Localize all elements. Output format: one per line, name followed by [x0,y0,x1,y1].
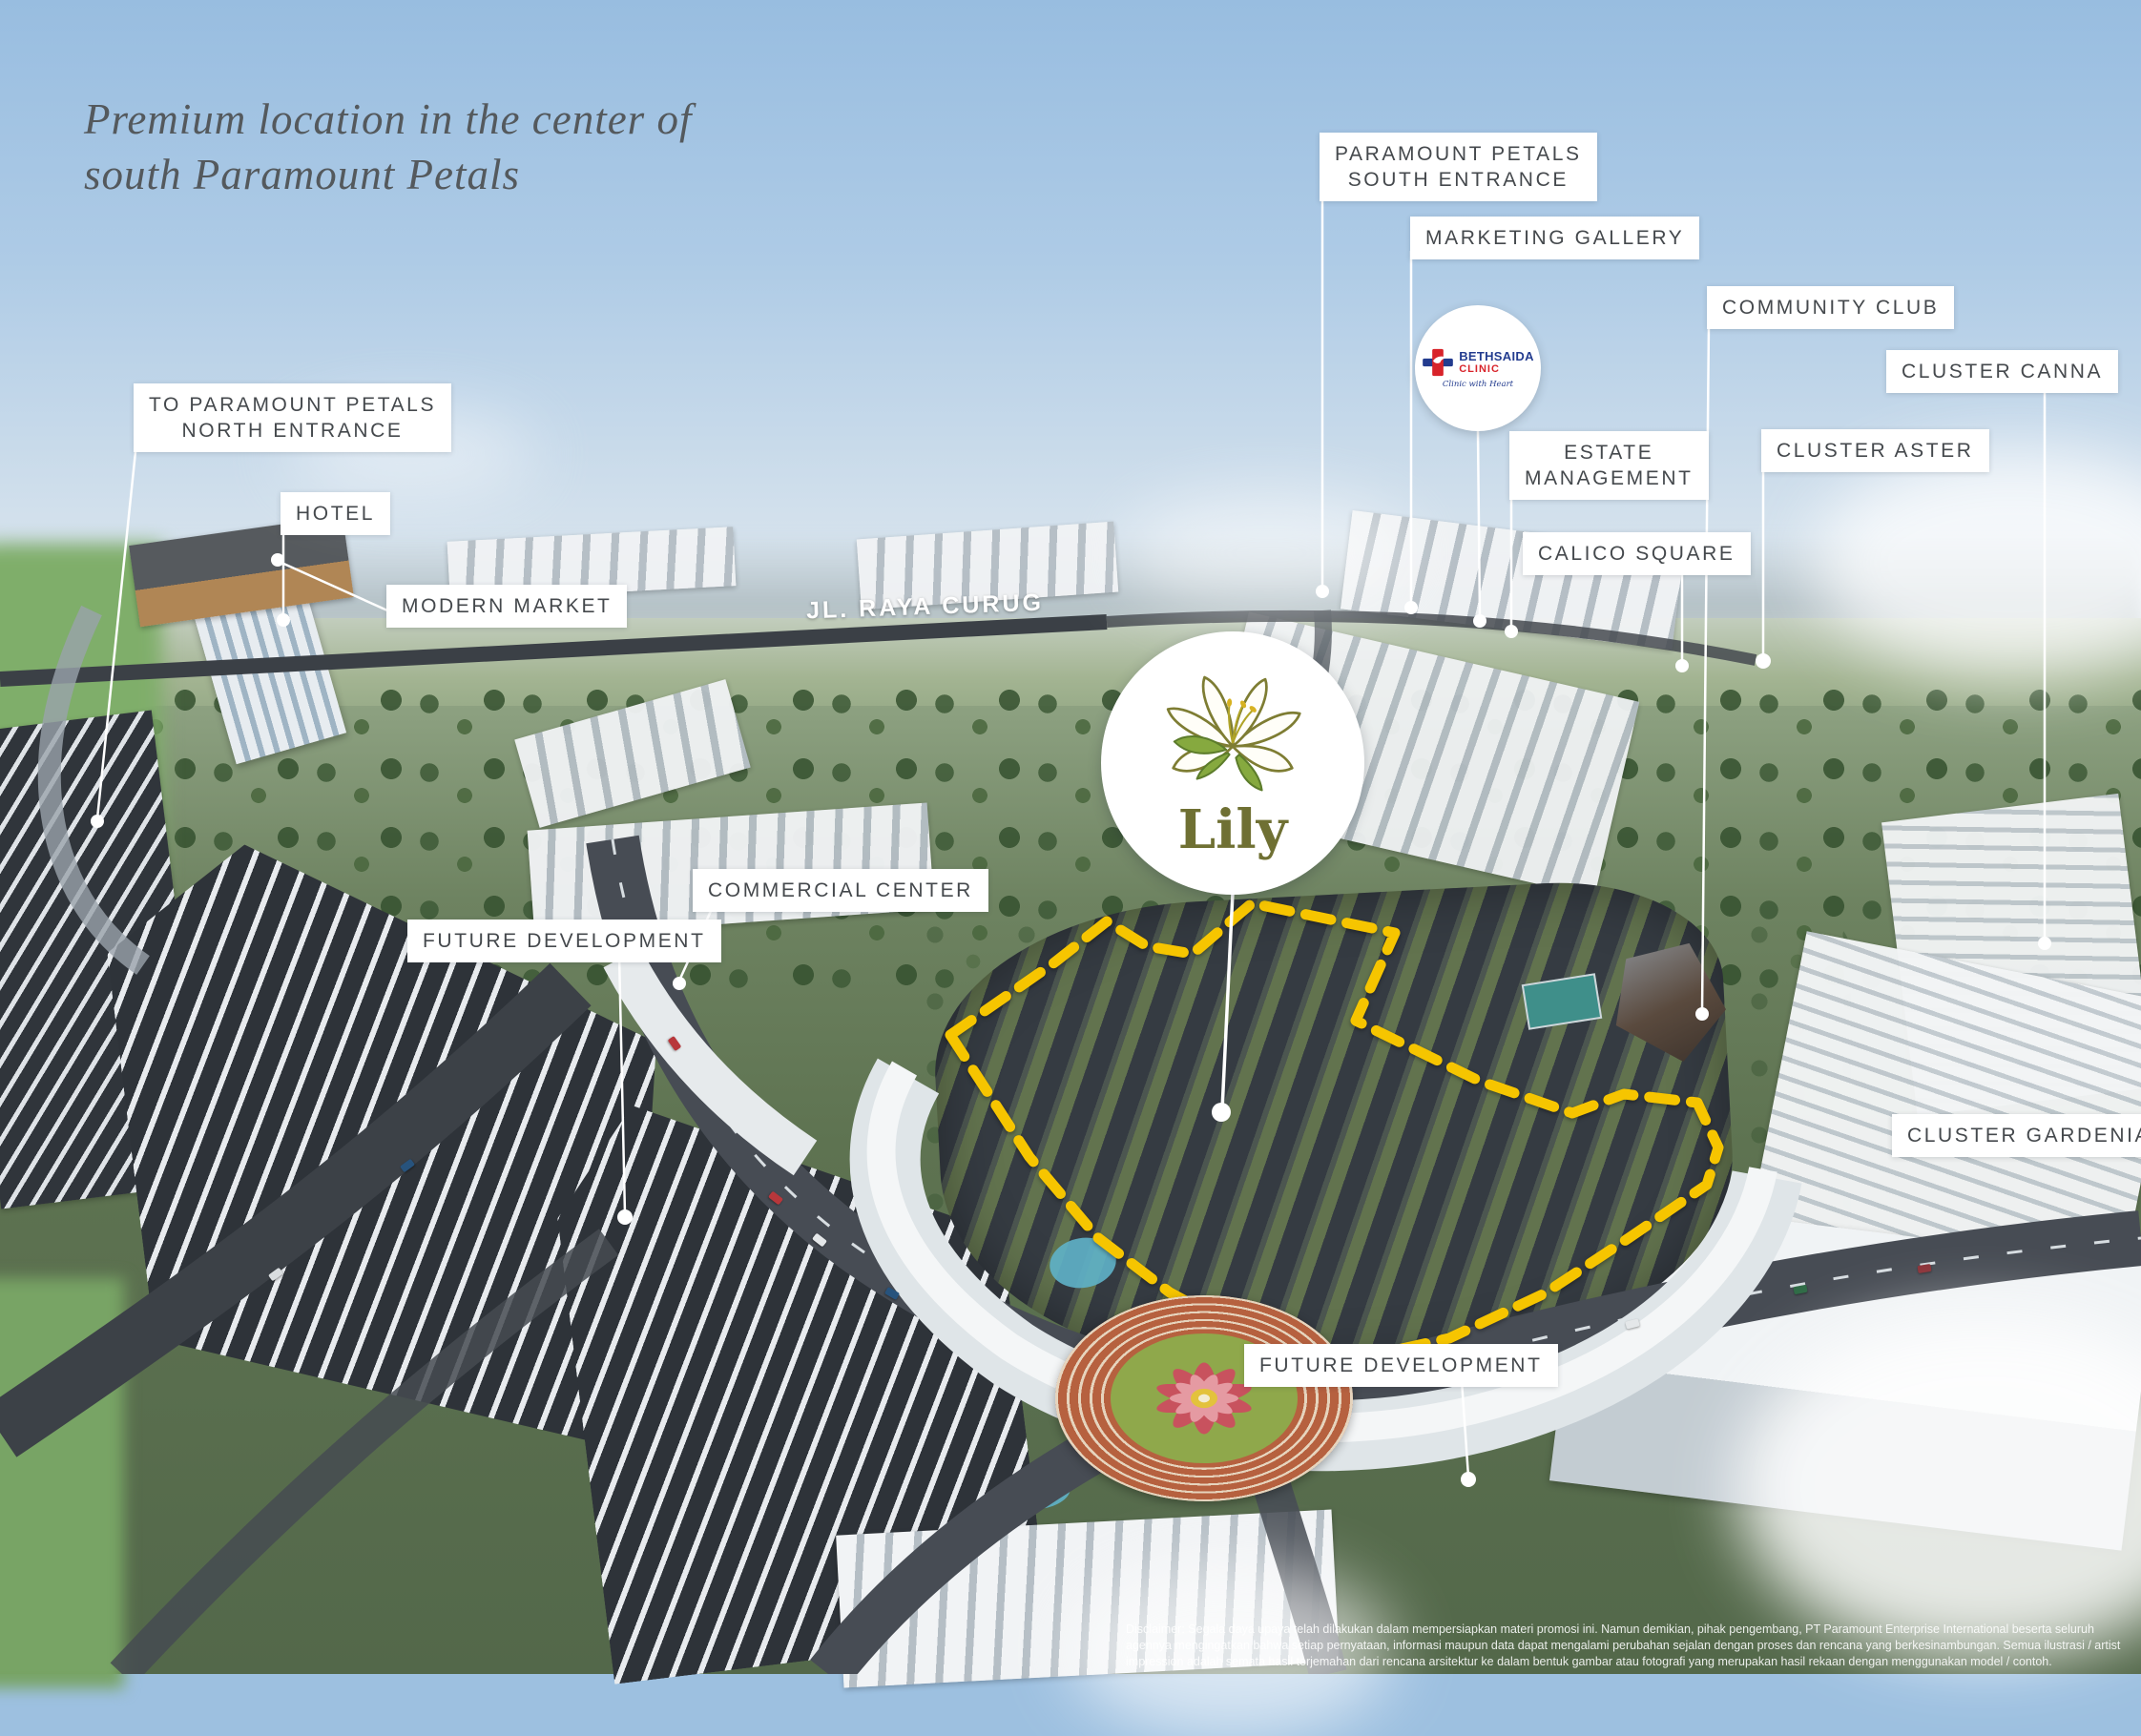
bethsaida-name: BETHSAIDA [1459,350,1534,363]
label-text: FUTURE DEVELOPMENT [423,928,706,954]
fog-cloud [1126,496,1412,610]
label-text: MANAGEMENT [1525,465,1694,491]
label-future-development-west: FUTURE DEVELOPMENT [407,920,721,962]
bethsaida-tagline: Clinic with Heart [1443,380,1513,389]
highway-road [0,622,1107,679]
medical-cross-dove-icon [1422,348,1454,377]
label-cluster-gardenia: CLUSTER GARDENIA [1892,1114,2141,1157]
label-text: CLUSTER GARDENIA [1907,1123,2141,1148]
bethsaida-clinic-badge: BETHSAIDA CLINIC Clinic with Heart [1415,305,1541,431]
label-text: MODERN MARKET [402,593,612,619]
label-commercial-center: COMMERCIAL CENTER [693,869,988,912]
label-text: HOTEL [296,501,375,527]
label-text: ESTATE [1525,440,1694,465]
label-text: FUTURE DEVELOPMENT [1259,1353,1543,1378]
label-modern-market: MODERN MARKET [386,585,627,628]
label-calico-square: CALICO SQUARE [1523,532,1751,575]
label-text: SOUTH ENTRANCE [1335,167,1582,193]
label-text: CLUSTER ASTER [1777,438,1974,464]
lily-wordmark: Lily [1101,798,1364,861]
label-text: COMMUNITY CLUB [1722,295,1939,320]
bethsaida-type: CLINIC [1459,363,1534,375]
label-south-entrance: PARAMOUNT PETALS SOUTH ENTRANCE [1320,133,1597,201]
label-future-development-south: FUTURE DEVELOPMENT [1244,1344,1558,1387]
label-north-entrance: TO PARAMOUNT PETALS NORTH ENTRANCE [134,383,451,452]
label-text: PARAMOUNT PETALS [1335,141,1582,167]
label-estate-management: ESTATE MANAGEMENT [1509,431,1709,500]
label-marketing-gallery: MARKETING GALLERY [1410,217,1699,259]
label-text: COMMERCIAL CENTER [708,878,973,903]
street-southwest [0,984,571,1433]
label-text: MARKETING GALLERY [1425,225,1684,251]
label-text: NORTH ENTRANCE [149,418,436,444]
label-community-club: COMMUNITY CLUB [1707,286,1954,329]
label-hotel: HOTEL [281,492,390,535]
label-cluster-aster: CLUSTER ASTER [1761,429,1989,472]
lily-cluster-boundary [950,903,1718,1360]
page-title-line1: Premium location in the center of [84,95,692,143]
lily-flower-icon [1152,656,1314,799]
label-text: CLUSTER CANNA [1902,359,2103,384]
north-entrance-ramp [50,610,143,965]
page-title-line2: south Paramount Petals [84,151,520,198]
label-cluster-canna: CLUSTER CANNA [1886,350,2118,393]
label-text: CALICO SQUARE [1538,541,1736,567]
lily-logo-badge: Lily [1101,631,1364,895]
label-text: TO PARAMOUNT PETALS [149,392,436,418]
disclaimer: Disclaimer: Segala daya upaya telah dila… [1126,1622,2137,1670]
roundabout [1055,1295,1353,1501]
page-title: Premium location in the center of south … [84,92,692,202]
